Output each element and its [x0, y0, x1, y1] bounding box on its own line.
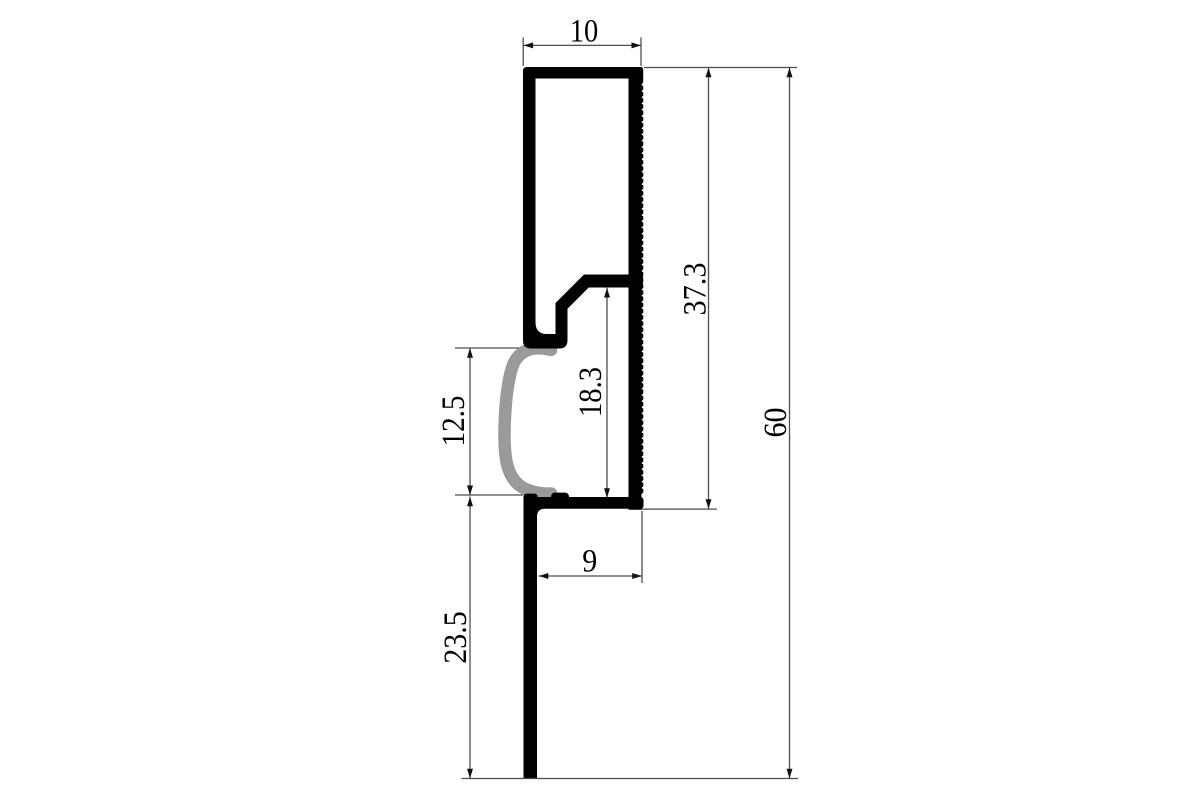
svg-text:12.5: 12.5 — [436, 396, 472, 447]
svg-text:18.3: 18.3 — [573, 367, 609, 417]
svg-text:23.5: 23.5 — [438, 611, 474, 664]
svg-text:9: 9 — [582, 544, 597, 580]
svg-text:60: 60 — [758, 408, 794, 438]
svg-text:37.3: 37.3 — [678, 263, 714, 316]
svg-text:10: 10 — [570, 14, 599, 50]
